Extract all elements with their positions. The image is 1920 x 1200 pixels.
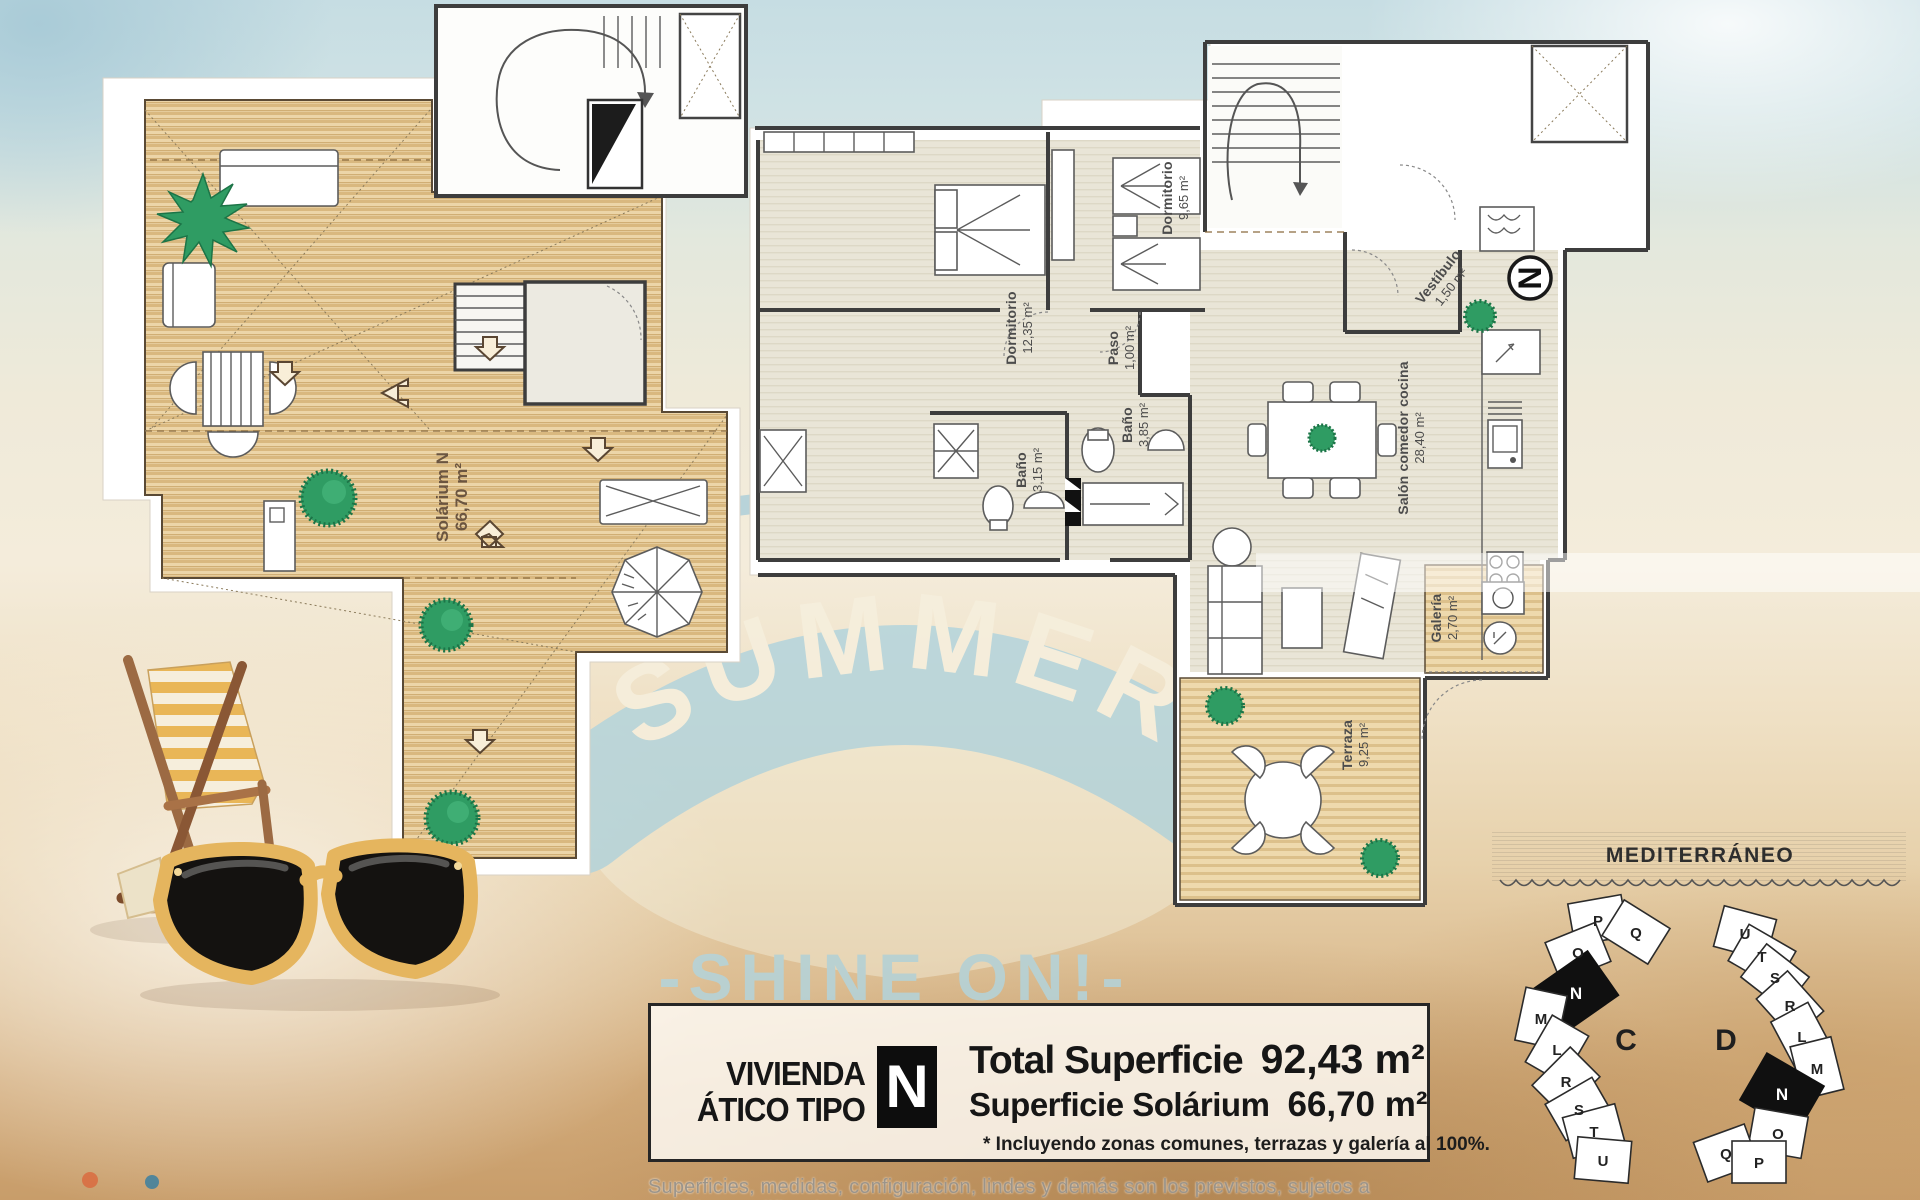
right-lens xyxy=(328,845,471,972)
pillow xyxy=(935,232,957,270)
dwelling-title-line2: ÁTICO TIPO xyxy=(677,1092,865,1128)
apartment-elevator-shaft-icon xyxy=(1532,46,1627,142)
sea-label: MEDITERRÁNEO xyxy=(1606,844,1794,867)
svg-text:3,15 m²: 3,15 m² xyxy=(1030,447,1045,492)
chair xyxy=(1248,424,1266,456)
svg-text:R: R xyxy=(1785,998,1796,1015)
solarium-stair-block xyxy=(436,6,746,196)
solarium-area-label: Superficie Solárium xyxy=(969,1086,1269,1123)
sun-lounger xyxy=(600,480,707,524)
svg-text:3,85 m²: 3,85 m² xyxy=(1136,402,1151,447)
svg-text:L: L xyxy=(1797,1029,1806,1046)
dwelling-title-line1: VIVIENDA xyxy=(677,1056,865,1092)
building-block-c: P Q O N M L R S T U C xyxy=(1515,895,1670,1184)
legal-disclaimer: Superficies, medidas, configuración, lin… xyxy=(648,1176,1448,1200)
total-area-value: 92,43 m² xyxy=(1261,1036,1425,1082)
svg-text:S: S xyxy=(1574,1102,1584,1119)
svg-text:O: O xyxy=(1572,945,1584,962)
svg-text:R: R xyxy=(1561,1074,1572,1091)
elevator-shaft-icon xyxy=(680,14,740,118)
lounge-chair xyxy=(163,263,215,327)
chair xyxy=(1378,424,1396,456)
svg-text:M: M xyxy=(1811,1061,1824,1078)
solarium-gray-room xyxy=(525,282,645,404)
info-box: VIVIENDA ÁTICO TIPO N Total Superficie92… xyxy=(648,1003,1430,1162)
block-d-label: D xyxy=(1715,1024,1737,1057)
solarium-label: Solárium N 66,70 m² xyxy=(433,452,471,542)
svg-text:M: M xyxy=(1535,1011,1548,1028)
chair xyxy=(1330,382,1360,402)
poster-canvas: Hello SUMMER -SHINE ON!- xyxy=(0,0,1920,1200)
svg-text:Salón comedor cocina: Salón comedor cocina xyxy=(1395,361,1411,514)
elevator-icon xyxy=(588,100,642,188)
solarium-area-value: 66,70 m² xyxy=(1287,1085,1427,1124)
svg-text:Q: Q xyxy=(1720,1146,1732,1163)
background-white-band xyxy=(1256,553,1920,592)
svg-text:S: S xyxy=(1770,970,1780,987)
plant-icon xyxy=(1207,688,1243,724)
svg-text:T: T xyxy=(1757,949,1766,966)
pillow xyxy=(935,190,957,228)
solarium-area-row: Superficie Solárium66,70 m² xyxy=(969,1085,1490,1125)
svg-text:Terraza: Terraza xyxy=(1339,720,1355,770)
svg-text:Baño: Baño xyxy=(1119,407,1135,443)
block-c-label: C xyxy=(1615,1024,1637,1057)
sofa xyxy=(1208,566,1262,674)
building-block-d: U T S R L M N O Q P D xyxy=(1693,906,1843,1183)
chair xyxy=(1283,478,1313,498)
dwelling-type-title: VIVIENDA ÁTICO TIPO xyxy=(677,1056,865,1128)
svg-text:66,70 m²: 66,70 m² xyxy=(452,463,471,531)
svg-text:Dormitorio: Dormitorio xyxy=(1159,161,1175,235)
planter-bench xyxy=(264,501,295,571)
closet xyxy=(1052,150,1074,260)
nightstand xyxy=(1113,216,1137,236)
svg-text:12,35 m²: 12,35 m² xyxy=(1020,302,1035,354)
shell-icon xyxy=(145,1175,159,1189)
sofa xyxy=(220,150,338,206)
areas-footnote: * Incluyendo zonas comunes, terrazas y g… xyxy=(983,1134,1490,1156)
svg-text:N: N xyxy=(1570,984,1582,1003)
svg-text:N: N xyxy=(1776,1085,1788,1104)
svg-text:Q: Q xyxy=(1630,925,1642,942)
svg-text:U: U xyxy=(1598,1153,1609,1170)
wardrobe xyxy=(764,132,914,152)
svg-text:L: L xyxy=(1552,1042,1561,1059)
svg-text:U: U xyxy=(1740,926,1751,943)
table-plant-icon xyxy=(1309,425,1335,451)
site-plan: MEDITERRÁNEO P Q O N M L R xyxy=(1492,830,1906,1183)
chair xyxy=(1283,382,1313,402)
svg-text:T: T xyxy=(1589,1124,1598,1141)
plant-icon xyxy=(1362,840,1398,876)
hall-plant-icon xyxy=(1465,301,1495,331)
chair xyxy=(1330,478,1360,498)
coffee-table xyxy=(1282,588,1322,648)
solarium-inner-stair xyxy=(455,284,525,370)
svg-text:Dormitorio: Dormitorio xyxy=(1003,291,1019,365)
svg-text:9,25 m²: 9,25 m² xyxy=(1356,722,1371,767)
north-compass-icon: N xyxy=(1509,257,1551,299)
svg-text:Paso: Paso xyxy=(1105,331,1121,365)
shell-icon xyxy=(82,1172,98,1188)
svg-text:1,00 m²: 1,00 m² xyxy=(1122,325,1137,370)
svg-text:Solárium N: Solárium N xyxy=(433,452,452,542)
svg-text:28,40 m²: 28,40 m² xyxy=(1412,412,1427,464)
svg-text:P: P xyxy=(1754,1155,1764,1172)
svg-text:Baño: Baño xyxy=(1013,452,1029,488)
armchair xyxy=(1213,528,1251,566)
parasol-icon xyxy=(612,547,702,637)
svg-text:O: O xyxy=(1772,1126,1784,1143)
sunglasses-photo xyxy=(118,845,500,1011)
svg-text:P: P xyxy=(1593,913,1603,930)
bridge xyxy=(306,872,336,880)
fridge xyxy=(1482,330,1540,374)
svg-text:Galería: Galería xyxy=(1428,594,1444,643)
total-area-label: Total Superficie xyxy=(969,1039,1243,1082)
svg-text:N: N xyxy=(1512,266,1548,289)
svg-text:2,70 m²: 2,70 m² xyxy=(1445,595,1460,640)
svg-text:9,65 m²: 9,65 m² xyxy=(1176,175,1191,220)
type-letter-badge: N xyxy=(877,1046,937,1128)
total-area-row: Total Superficie92,43 m² xyxy=(969,1036,1490,1083)
